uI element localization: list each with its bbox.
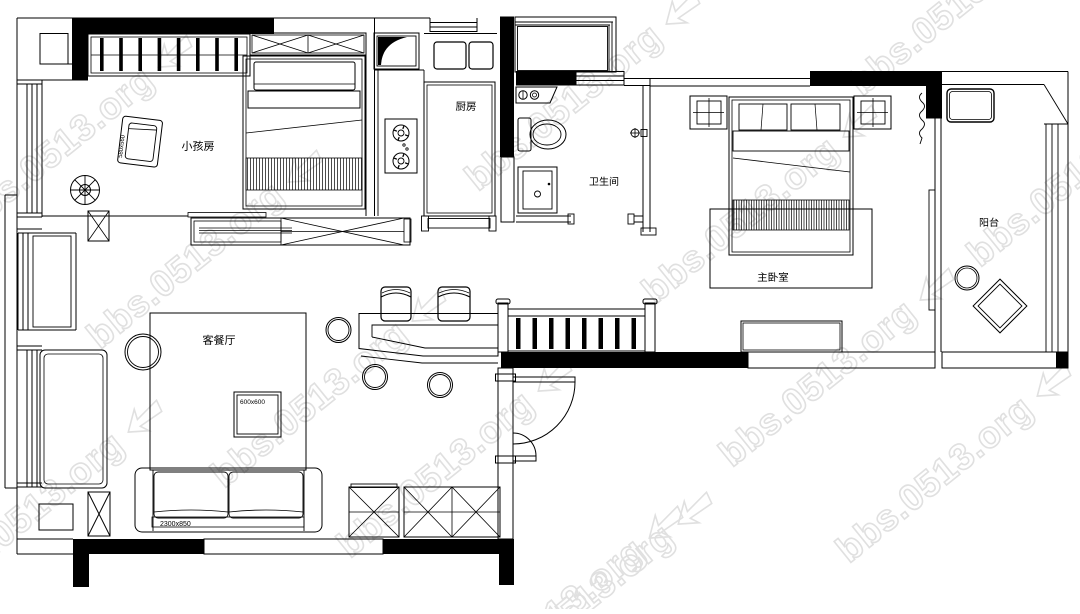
- svg-text:600x600: 600x600: [240, 399, 265, 406]
- svg-text:2300x850: 2300x850: [160, 521, 191, 528]
